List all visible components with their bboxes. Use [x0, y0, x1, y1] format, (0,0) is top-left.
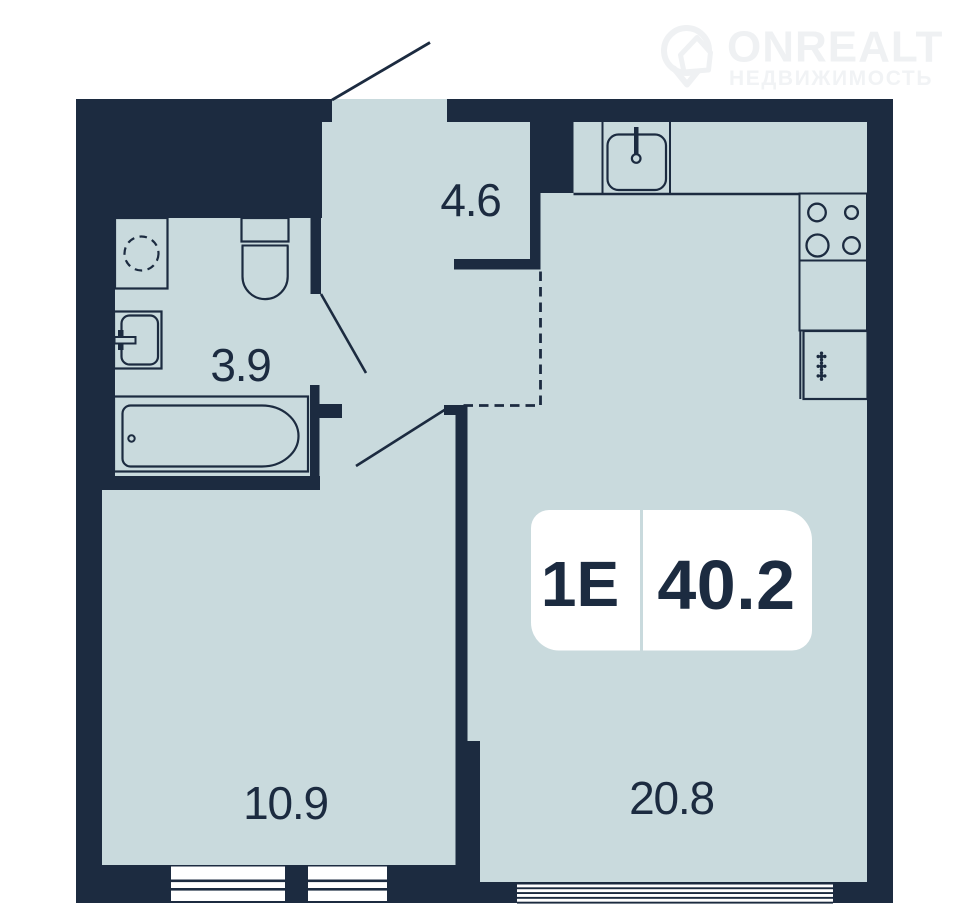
svg-text:ONREALT: ONREALT: [727, 23, 943, 72]
svg-text:3.9: 3.9: [210, 339, 270, 391]
svg-text:4.6: 4.6: [440, 174, 500, 226]
svg-text:НЕДВИЖИМОСТЬ: НЕДВИЖИМОСТЬ: [729, 67, 933, 90]
svg-text:10.9: 10.9: [243, 777, 328, 829]
svg-text:1E: 1E: [541, 548, 619, 620]
svg-text:20.8: 20.8: [629, 772, 714, 824]
svg-text:40.2: 40.2: [657, 546, 795, 624]
